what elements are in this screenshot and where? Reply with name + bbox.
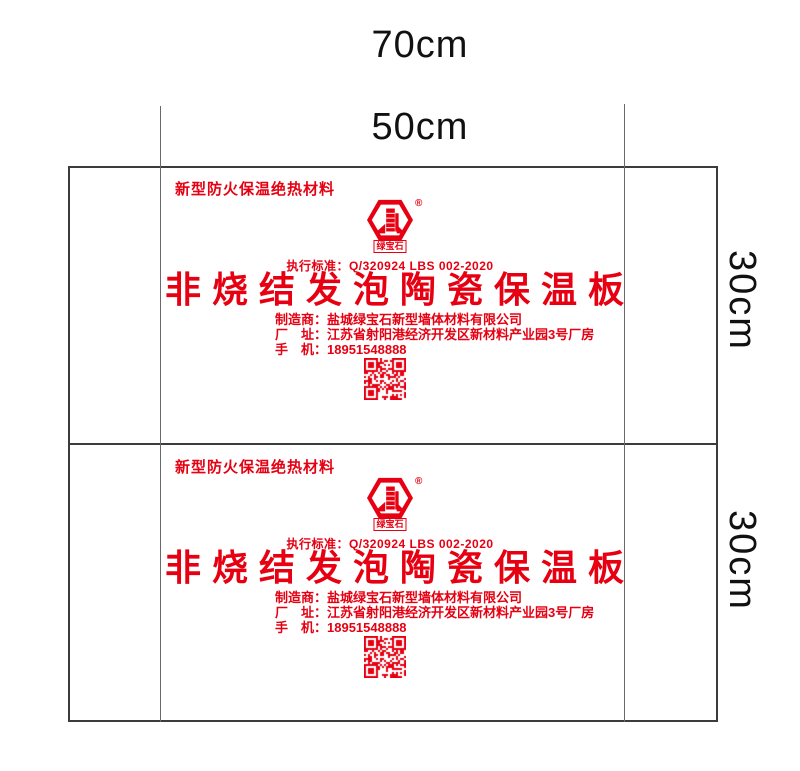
brand-wordmark: 绿宝石 xyxy=(373,518,406,531)
address-line: 厂 址：江苏省射阳港经济开发区新材料产业园3号厂房 xyxy=(275,605,594,620)
manufacturer-info-block: 制造商：盐城绿宝石新型墙体材料有限公司 厂 址：江苏省射阳港经济开发区新材料产业… xyxy=(275,590,594,635)
phone-line: 手 机：18951548888 xyxy=(275,342,594,357)
qr-code xyxy=(364,636,406,678)
phone-line: 手 机：18951548888 xyxy=(275,620,594,635)
brand-wordmark: 绿宝石 xyxy=(373,240,406,253)
address-line: 厂 址：江苏省射阳港经济开发区新材料产业园3号厂房 xyxy=(275,327,594,342)
label-panel-bottom: 新型防火保温绝热材料 ® 绿宝石 执行标准：Q/320924 LBS 002-2… xyxy=(68,444,718,722)
bottom-panel-height-label: 30cm xyxy=(720,510,763,611)
outer-width-label: 70cm xyxy=(372,24,469,67)
label-panel-top: 新型防火保温绝热材料 ® 绿宝石 执行标准：Q/320924 LBS 002-2… xyxy=(68,166,718,444)
hexagon-building-icon xyxy=(367,198,413,242)
brand-logo: ® 绿宝石 xyxy=(367,198,427,254)
product-category-text: 新型防火保温绝热材料 xyxy=(175,178,335,199)
manufacturer-line: 制造商：盐城绿宝石新型墙体材料有限公司 xyxy=(275,312,594,327)
manufacturer-line: 制造商：盐城绿宝石新型墙体材料有限公司 xyxy=(275,590,594,605)
product-category-text: 新型防火保温绝热材料 xyxy=(175,456,335,477)
manufacturer-info-block: 制造商：盐城绿宝石新型墙体材料有限公司 厂 址：江苏省射阳港经济开发区新材料产业… xyxy=(275,312,594,357)
product-title: 非烧结发泡陶瓷保温板 xyxy=(165,550,635,586)
brand-logo: ® 绿宝石 xyxy=(367,476,427,532)
inner-width-label: 50cm xyxy=(372,106,469,149)
registered-trademark-icon: ® xyxy=(415,198,422,209)
hexagon-building-icon xyxy=(367,476,413,520)
registered-trademark-icon: ® xyxy=(415,476,422,487)
packaging-dieline-proof: 70cm 50cm 30cm 30cm 新型防火保温绝热材料 xyxy=(0,0,800,771)
top-panel-height-label: 30cm xyxy=(720,250,763,351)
product-title: 非烧结发泡陶瓷保温板 xyxy=(165,272,635,308)
qr-code xyxy=(364,358,406,400)
